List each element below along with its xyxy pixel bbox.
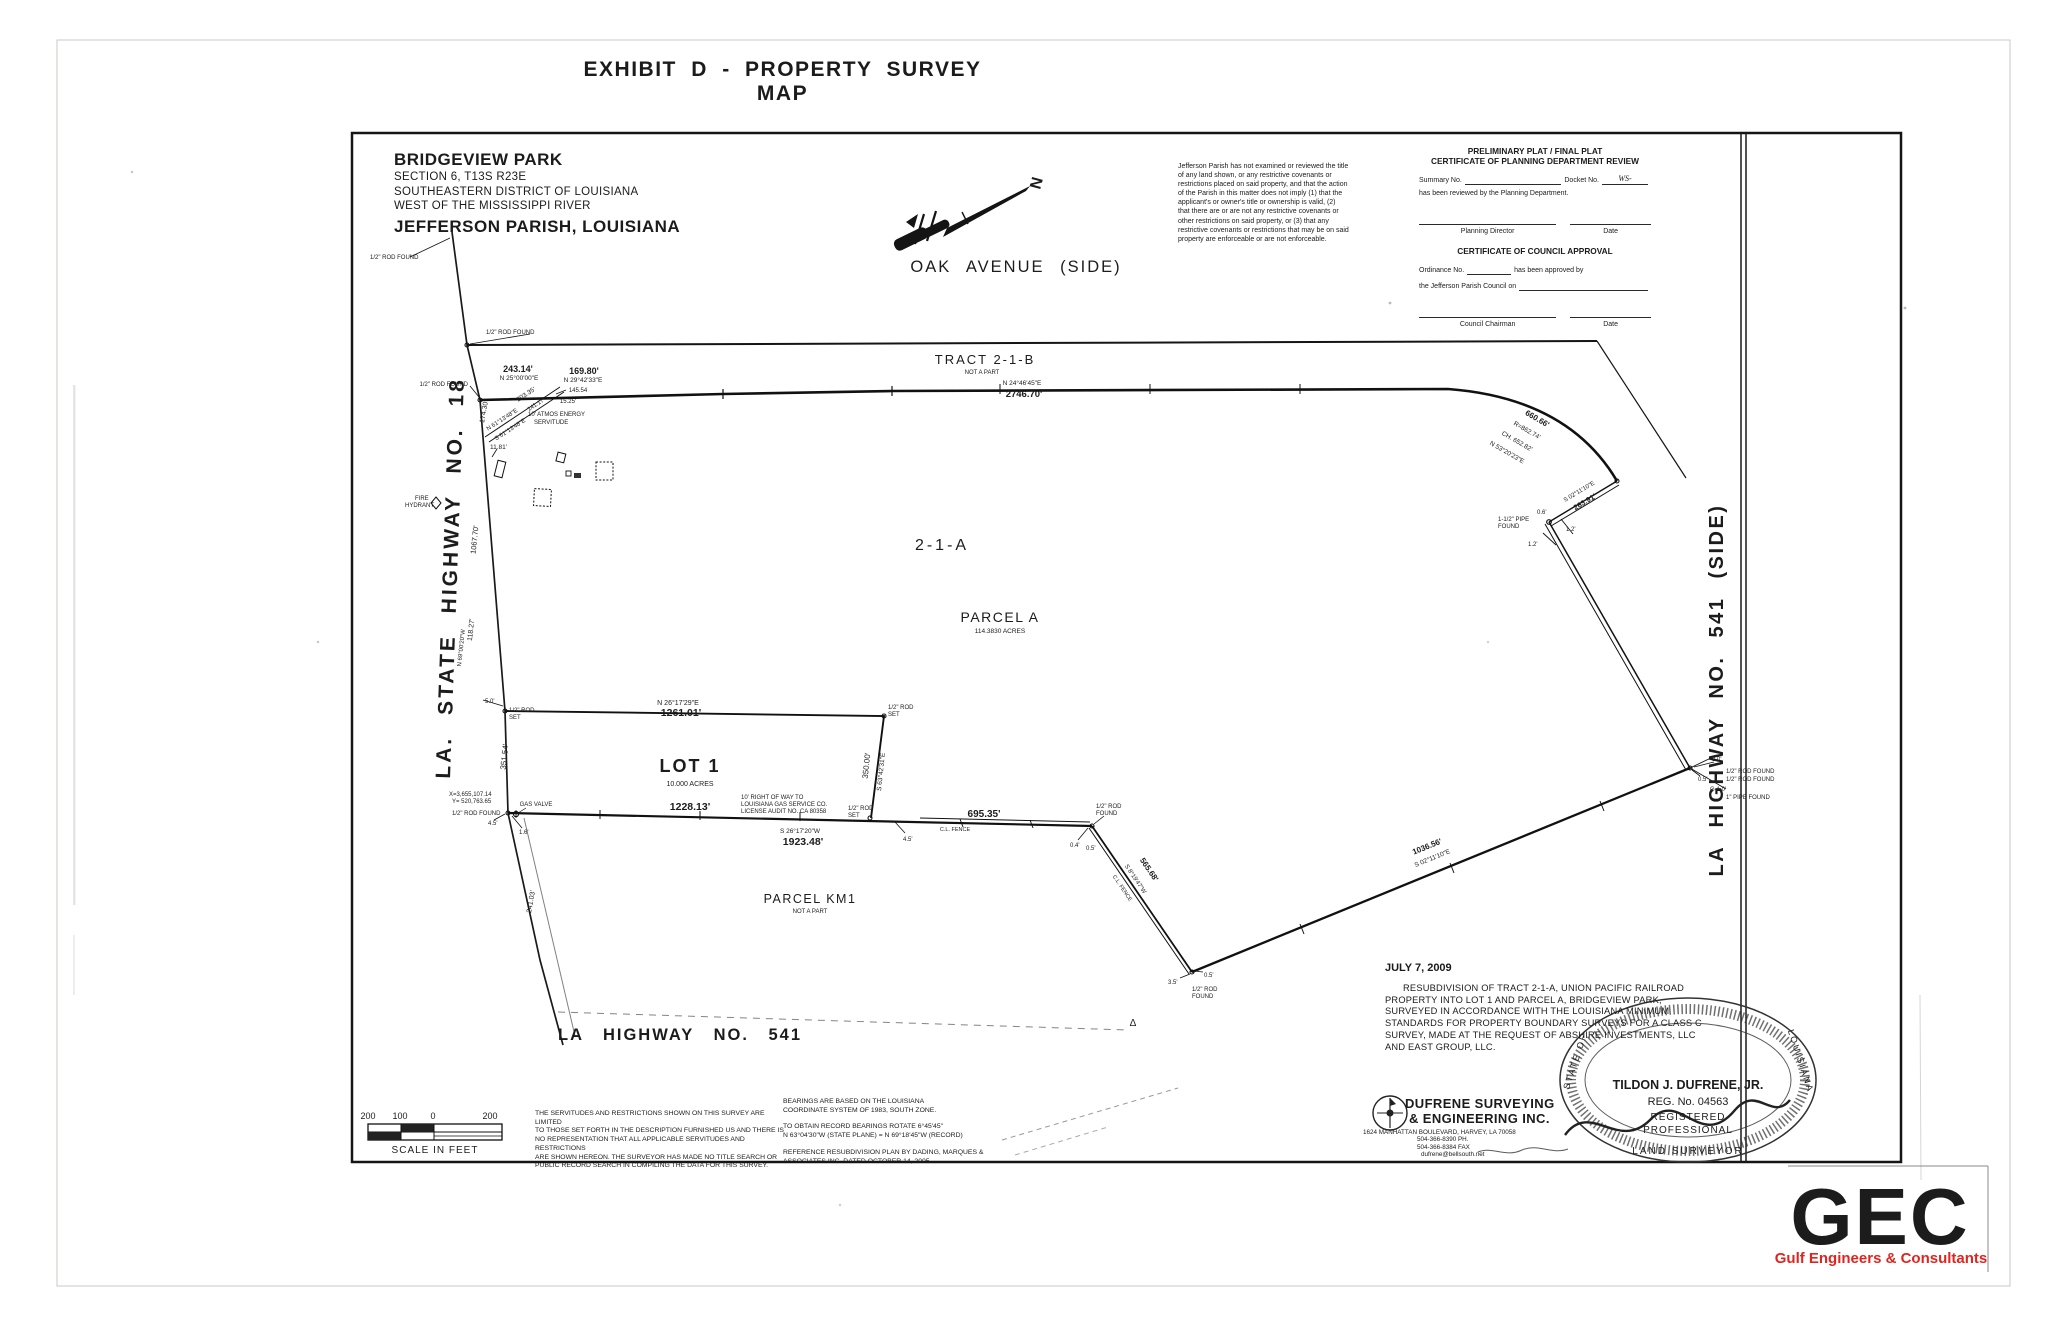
disclaimer-line: of the Parish in this matter does not im… — [1178, 189, 1410, 198]
council-chairman-label: Council Chairman — [1419, 320, 1556, 329]
ordinance-label: Ordinance No. — [1419, 266, 1464, 275]
tract-2-1-b-note: NOT A PART — [965, 370, 1000, 376]
date-line-1 — [1570, 214, 1651, 225]
off-06: 0.6' — [1537, 510, 1547, 516]
scale-caption: SCALE IN FEET — [392, 1145, 479, 1156]
council-chairman-line — [1419, 307, 1556, 318]
seg-169: 169.80' — [569, 366, 599, 376]
rod-found-nw1: 1/2" ROD FOUND — [486, 330, 535, 336]
south-dist: 1923.48' — [783, 836, 823, 848]
date-label-1: Date — [1570, 227, 1651, 236]
off-16: 1.6' — [519, 830, 529, 836]
pipe15-label-1: 1-1/2" PIPE — [1498, 517, 1529, 523]
scale-200l: 200 — [360, 1111, 375, 1121]
survey-map-page: EXHIBIT D - PROPERTY SURVEY MAP — [0, 0, 2048, 1325]
coord-y: Y= 520,763.65 — [452, 799, 492, 805]
cert-title-1: PRELIMINARY PLAT / FINAL PLAT — [1419, 146, 1651, 156]
north-arrow-icon — [892, 186, 1030, 252]
rod-found-se1: 1/2" ROD FOUND — [1726, 769, 1775, 775]
lot1-s-dist: 1228.13' — [670, 801, 710, 813]
lot1-n-dist: 1261.01' — [661, 707, 701, 719]
firm-address: 1624 MANHATTAN BOULEVARD, HARVEY, LA 700… — [1363, 1129, 1573, 1136]
off-35: 3.5' — [1168, 980, 1178, 986]
cert-summary-label: Summary No. — [1419, 176, 1462, 185]
title-line-2: SECTION 6, T13S R23E — [394, 170, 714, 185]
servitude-note-line: TO THOSE SET FORTH IN THE DESCRIPTION FU… — [535, 1127, 787, 1136]
certification-line: RESUBDIVISION OF TRACT 2-1-A, UNION PACI… — [1385, 983, 1785, 995]
certification-line: PROPERTY INTO LOT 1 AND PARCEL A, BRIDGE… — [1385, 995, 1785, 1007]
dim-145: 145.54 — [569, 388, 588, 394]
record-bearings-1: TO OBTAIN RECORD BEARINGS ROTATE 6°45'45… — [783, 1123, 1013, 1132]
rod-found-top: 1/2" ROD FOUND — [370, 255, 419, 261]
north-bearing: N 24°46'45"E — [1003, 379, 1042, 387]
parcel-a-label: PARCEL A — [961, 609, 1040, 625]
w-dim-24103: 241.03' — [526, 890, 537, 914]
date-label-2: Date — [1570, 320, 1651, 329]
certification-line: AND EAST GROUP, LLC. — [1385, 1042, 1785, 1054]
council-date-field — [1519, 280, 1648, 291]
firm-block: DUFRENE SURVEYING & ENGINEERING INC. 162… — [1363, 1096, 1573, 1159]
off-12b: 1.2' — [1528, 542, 1538, 548]
certification-date: JULY 7, 2009 — [1385, 962, 1785, 974]
atmos-servitude-1: 10' ATMOS ENERGY — [528, 412, 585, 418]
servitude-note-line: THE SERVITUDES AND RESTRICTIONS SHOWN ON… — [535, 1110, 787, 1127]
rod-set-s-1: 1/2" ROD — [848, 806, 874, 812]
reference-plan-2: ASSOCIATES INC. DATED OCTOBER 14, 2005 — [783, 1158, 1013, 1167]
dim-203: 203.35' — [515, 386, 537, 403]
cl-fence-1: C.L. FENCE — [940, 827, 971, 833]
tract-2-1-b-label: TRACT 2-1-B — [935, 352, 1036, 367]
lot1-n-bearing: N 26°17'29"E — [657, 699, 699, 707]
seg-695: 695.35' — [968, 809, 1001, 820]
planning-director-label: Planning Director — [1419, 227, 1556, 236]
north-boundary-lines — [467, 341, 1686, 481]
planning-director-line — [1419, 214, 1556, 225]
w-dim-11827: 118.27' — [467, 618, 476, 641]
north-distance: 2746.70' — [1006, 389, 1043, 400]
seg-243: 243.14' — [503, 364, 533, 374]
parcel-a-acres: 114.3830 ACRES — [975, 628, 1026, 635]
rod-set-lot1ne-2: SET — [888, 712, 900, 718]
firm-name-2: & ENGINEERING INC. — [1409, 1111, 1573, 1126]
firm-name-1: DUFRENE SURVEYING — [1405, 1096, 1573, 1111]
title-line-4: WEST OF THE MISSISSIPPI RIVER — [394, 199, 714, 214]
disclaimer-line: other restrictions on said property, or … — [1178, 217, 1410, 226]
rod-set-lot1ne-1: 1/2" ROD — [888, 705, 914, 711]
seal-professional: PROFESSIONAL — [1643, 1125, 1733, 1136]
rod-found-sw: 1/2" ROD FOUND — [452, 811, 501, 817]
certification-line: SURVEY, MADE AT THE REQUEST OF ABSHIRE I… — [1385, 1030, 1785, 1042]
scale-200r: 200 — [482, 1111, 497, 1121]
rod-set-s-2: SET — [848, 813, 860, 819]
firm-fax: 504-366-8384 FAX — [1417, 1144, 1573, 1151]
disclaimer-line: Jefferson Parish has not examined or rev… — [1178, 162, 1410, 171]
council-on-label: the Jefferson Parish Council on — [1419, 282, 1516, 291]
title-line-1: BRIDGEVIEW PARK — [394, 150, 714, 170]
certificate-block: PRELIMINARY PLAT / FINAL PLAT CERTIFICAT… — [1419, 146, 1651, 329]
parish-disclaimer: Jefferson Parish has not examined or rev… — [1178, 162, 1410, 244]
north-arrow-label: N — [1027, 175, 1046, 191]
se-boundary-lines — [1192, 768, 1690, 972]
seal-land-surveyor: LAND SURVEYOR — [1632, 1146, 1743, 1157]
date-line-2 — [1570, 307, 1651, 318]
pipe15-label-2: FOUND — [1498, 524, 1520, 530]
firm-email: dufrene@bellsouth.net — [1421, 1151, 1573, 1158]
lot1-label: LOT 1 — [659, 756, 720, 776]
delta-mark: Δ — [1130, 1018, 1137, 1029]
gas-valve-label: GAS VALVE — [520, 802, 553, 808]
rod-set-lot1nw-2: SET — [509, 715, 521, 721]
parcel-km1-label: PARCEL KM1 — [764, 892, 857, 906]
rod-found-bottom-1: 1/2" ROD — [1192, 987, 1218, 993]
seal-reg: REG. No. 04563 — [1648, 1096, 1729, 1108]
south-bearing: S 26°17'20"W — [780, 827, 821, 835]
disclaimer-line: restrictive covenants or restrictions th… — [1178, 226, 1410, 235]
row-note-1: 10' RIGHT OF WAY TO — [741, 795, 804, 801]
cl-fence-2: C.L. FENCE — [1111, 874, 1133, 903]
pipe1-found: 1" PIPE FOUND — [1726, 795, 1770, 801]
lot1-e-dist: 350.00' — [861, 752, 873, 779]
seal-name: TILDON J. DUFRENE, JR. — [1613, 1078, 1764, 1092]
rod-found-695-2: FOUND — [1096, 811, 1118, 817]
title-line-5: JEFFERSON PARISH, LOUISIANA — [394, 217, 714, 237]
fire-hydrant-label-2: HYDRANT — [405, 503, 434, 509]
title-line-3: SOUTHEASTERN DISTRICT OF LOUISIANA — [394, 185, 714, 200]
ordinance-no-field — [1467, 264, 1511, 275]
record-bearings-2: N 63°04'30"W (STATE PLANE) = N 69°18'45"… — [783, 1132, 1013, 1141]
w-dim-106770: 1067.70' — [469, 525, 481, 555]
dim-1525: 15.25' — [560, 399, 576, 405]
gec-logo: GEC Gulf Engineers & Consultants — [1775, 1166, 1988, 1272]
coord-x: X=3,655,107.14 — [449, 792, 492, 798]
title-block: BRIDGEVIEW PARK SECTION 6, T13S R23E SOU… — [394, 150, 714, 237]
certification-block: JULY 7, 2009 RESUBDIVISION OF TRACT 2-1-… — [1385, 962, 1785, 1053]
off-04: 0.4' — [1070, 843, 1080, 849]
plat-drawing: N OAK AVENUE (SIDE) — [0, 0, 2048, 1325]
row-note-2: LOUISIANA GAS SERVICE CO. — [741, 802, 828, 808]
hwy18-label: LA. STATE HIGHWAY NO. 18 — [432, 377, 469, 779]
row-note-3: LICENSE AUDIT NO. CA 80358 — [741, 809, 827, 815]
bearings-basis-2: COORDINATE SYSTEM OF 1983, SOUTH ZONE. — [783, 1107, 1013, 1116]
lot1-acres: 10.000 ACRES — [666, 781, 713, 788]
leader-lines — [410, 238, 1714, 978]
seal-registered: REGISTERED — [1650, 1112, 1725, 1123]
gec-letters: GEC — [1790, 1172, 1969, 1261]
certification-line: SURVEYED IN ACCORDANCE WITH THE LOUISIAN… — [1385, 1006, 1785, 1018]
cert-reviewed-line: has been reviewed by the Planning Depart… — [1419, 189, 1651, 198]
approved-label: has been approved by — [1514, 266, 1583, 275]
scale-100: 100 — [392, 1111, 407, 1121]
hwy541-bottom-label: LA HIGHWAY NO. 541 — [558, 1026, 802, 1045]
reference-plan-1: REFERENCE RESUBDIVISION PLAN BY DADING, … — [783, 1149, 1013, 1158]
disclaimer-line: restrictions placed on said property, an… — [1178, 180, 1410, 189]
servitude-note: THE SERVITUDES AND RESTRICTIONS SHOWN ON… — [535, 1110, 787, 1171]
parcel-km1-note: NOT A PART — [793, 909, 828, 915]
docket-no-field: WS- — [1602, 174, 1648, 185]
certification-line: STANDARDS FOR PROPERTY BOUNDARY SURVEYS … — [1385, 1018, 1785, 1030]
rod-found-se2: 1/2" ROD FOUND — [1726, 777, 1775, 783]
area-2-1-a-label: 2-1-A — [915, 537, 969, 554]
off-05c: 0.5' — [1204, 973, 1214, 979]
servitude-note-line: ARE SHOWN HEREON. THE SURVEYOR HAS MADE … — [535, 1154, 787, 1163]
servitude-note-line: NO REPRESENTATION THAT ALL APPLICABLE SE… — [535, 1136, 787, 1153]
cert-title-2: CERTIFICATE OF PLANNING DEPARTMENT REVIE… — [1419, 156, 1651, 166]
disclaimer-line: property are enforceable or are not enfo… — [1178, 235, 1410, 244]
oak-avenue-label: OAK AVENUE (SIDE) — [910, 258, 1121, 276]
rod-found-bottom-2: FOUND — [1192, 994, 1214, 1000]
hwy541-side-label: LA HIGHWAY NO. 541 (SIDE) — [1706, 504, 1728, 877]
dim-1181: 11.81' — [490, 444, 507, 451]
seg-169-bearing: N 29°42'33"E — [564, 376, 603, 384]
seg-243-bearing: N 25°00'00"E — [500, 374, 539, 382]
atmos-servitude-2: SERVITUDE — [534, 420, 568, 426]
off-45e: 4.5' — [903, 837, 913, 843]
w-dim-35154: 351.54' — [499, 743, 511, 770]
servitude-note-line: PUBLIC RECORD SEARCH IN COMPILING THE DA… — [535, 1162, 787, 1171]
cert-title-3: CERTIFICATE OF COUNCIL APPROVAL — [1419, 246, 1651, 256]
gec-tagline: Gulf Engineers & Consultants — [1775, 1250, 1988, 1267]
scale-0: 0 — [430, 1111, 435, 1121]
disclaimer-line: applicant's or owner's title or ownershi… — [1178, 198, 1410, 207]
off-12a: 1.2' — [1566, 527, 1576, 533]
fire-hydrant-label-1: FIRE — [415, 496, 429, 502]
bearings-note: BEARINGS ARE BASED ON THE LOUISIANA COOR… — [783, 1098, 1013, 1166]
rod-found-695-1: 1/2" ROD — [1096, 804, 1122, 810]
firm-phone: 504-366-8390 PH. — [1417, 1136, 1573, 1143]
disclaimer-line: of any land shown, or any restrictive co… — [1178, 171, 1410, 180]
bearings-basis-1: BEARINGS ARE BASED ON THE LOUISIANA — [783, 1098, 1013, 1107]
cert-docket-label: Docket No. — [1564, 176, 1599, 185]
scale-bar — [368, 1124, 502, 1140]
off-45w: 4.5' — [488, 821, 498, 827]
disclaimer-line: that there are or are not any restrictiv… — [1178, 207, 1410, 216]
off-50: 5.0' — [485, 699, 495, 705]
map-labels: TRACT 2-1-B NOT A PART N 24°46'45"E 2746… — [370, 255, 1775, 1029]
off-05b: 0.5' — [1086, 846, 1096, 852]
rod-set-lot1nw-1: 1/2" ROD — [509, 708, 535, 714]
seg-565: 565.68' — [1138, 856, 1160, 883]
summary-no-field — [1465, 174, 1562, 185]
